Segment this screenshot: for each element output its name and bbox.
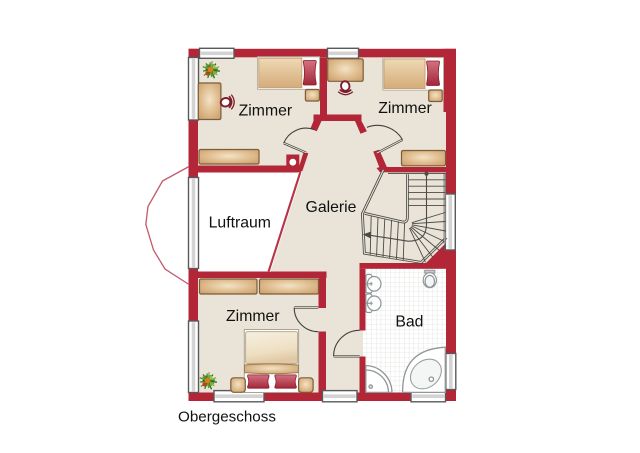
svg-text:Galerie: Galerie <box>306 199 357 216</box>
svg-text:Zimmer: Zimmer <box>378 100 432 117</box>
svg-text:Zimmer: Zimmer <box>226 308 280 325</box>
svg-text:Bad: Bad <box>395 314 423 331</box>
svg-text:Obergeschoss: Obergeschoss <box>178 409 276 426</box>
svg-text:Luftraum: Luftraum <box>209 215 271 232</box>
svg-text:Zimmer: Zimmer <box>239 103 293 120</box>
